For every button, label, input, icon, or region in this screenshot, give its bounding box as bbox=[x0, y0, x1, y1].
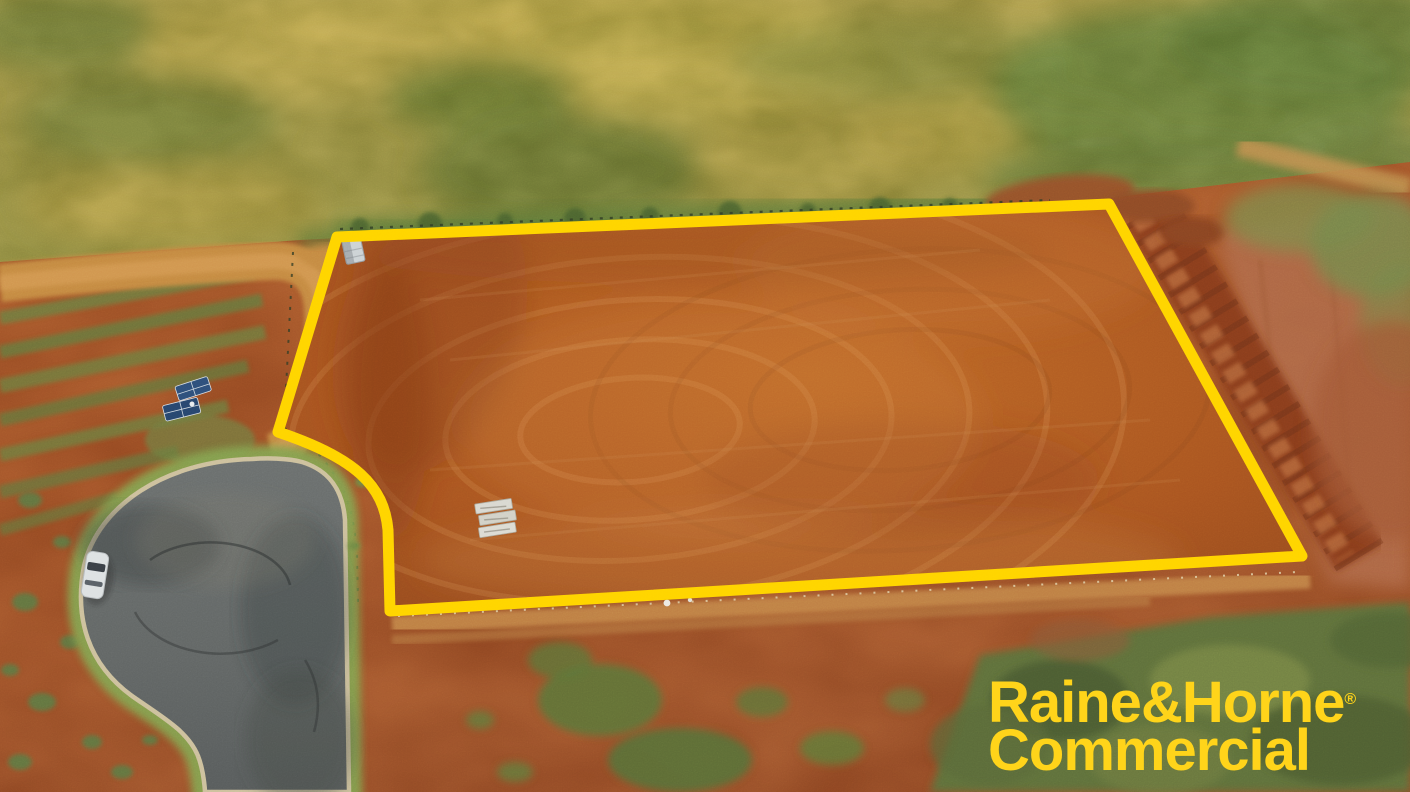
aerial-photo: Raine&Horne® Commercial bbox=[0, 0, 1410, 792]
registered-trademark-symbol: ® bbox=[1344, 691, 1356, 708]
watermark-logo: Raine&Horne® Commercial bbox=[988, 676, 1356, 775]
logo-line2: Commercial bbox=[988, 727, 1356, 775]
